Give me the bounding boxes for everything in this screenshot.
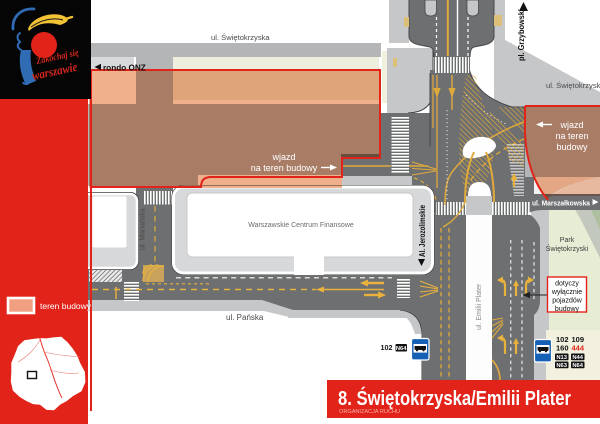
svg-text:budowy: budowy [556, 142, 588, 152]
svg-text:ul. Świętokrzyska: ul. Świętokrzyska [546, 81, 600, 90]
svg-text:ul. Mariańska: ul. Mariańska [140, 208, 147, 250]
svg-text:na teren budowy: na teren budowy [251, 163, 318, 173]
svg-text:pl. Grzybowski: pl. Grzybowski [517, 9, 526, 61]
svg-text:dotyczy: dotyczy [555, 281, 579, 288]
svg-text:8. Świętokrzyska/Emilii Plater: 8. Świętokrzyska/Emilii Plater [338, 386, 571, 410]
svg-text:ORGANIZACJA RUCHU: ORGANIZACJA RUCHU [339, 409, 400, 415]
svg-text:wjazd: wjazd [559, 120, 583, 130]
svg-text:Al. Jerozolimskie: Al. Jerozolimskie [418, 204, 427, 257]
svg-text:ul. Emilii Plater: ul. Emilii Plater [476, 283, 483, 330]
svg-text:ul. Pańska: ul. Pańska [226, 313, 264, 322]
svg-text:444: 444 [572, 343, 585, 352]
svg-text:3: 3 [22, 72, 31, 89]
svg-text:wjazd: wjazd [271, 152, 295, 162]
svg-text:N64: N64 [396, 346, 407, 352]
svg-text:ul. Świętokrzyska: ul. Świętokrzyska [211, 33, 270, 42]
svg-text:pojazdów: pojazdów [552, 298, 583, 305]
svg-text:Świętokrzyski: Świętokrzyski [546, 244, 589, 253]
svg-text:Warszawskie Centrum Finansowe: Warszawskie Centrum Finansowe [248, 222, 354, 229]
svg-text:teren budowy: teren budowy [40, 301, 92, 311]
svg-text:N63: N63 [556, 363, 567, 369]
svg-text:160: 160 [556, 343, 569, 352]
svg-text:102: 102 [381, 343, 393, 352]
svg-text:ul. Marszałkowska: ul. Marszałkowska [532, 199, 591, 208]
svg-text:wyłącznie: wyłącznie [551, 289, 582, 296]
svg-text:N64: N64 [572, 363, 583, 369]
svg-text:Park: Park [560, 237, 575, 244]
svg-text:rondo ONZ: rondo ONZ [103, 64, 146, 73]
svg-text:na teren: na teren [555, 131, 588, 141]
svg-text:N13: N13 [556, 355, 567, 361]
svg-text:budowy: budowy [555, 306, 580, 313]
svg-text:N44: N44 [572, 355, 583, 361]
